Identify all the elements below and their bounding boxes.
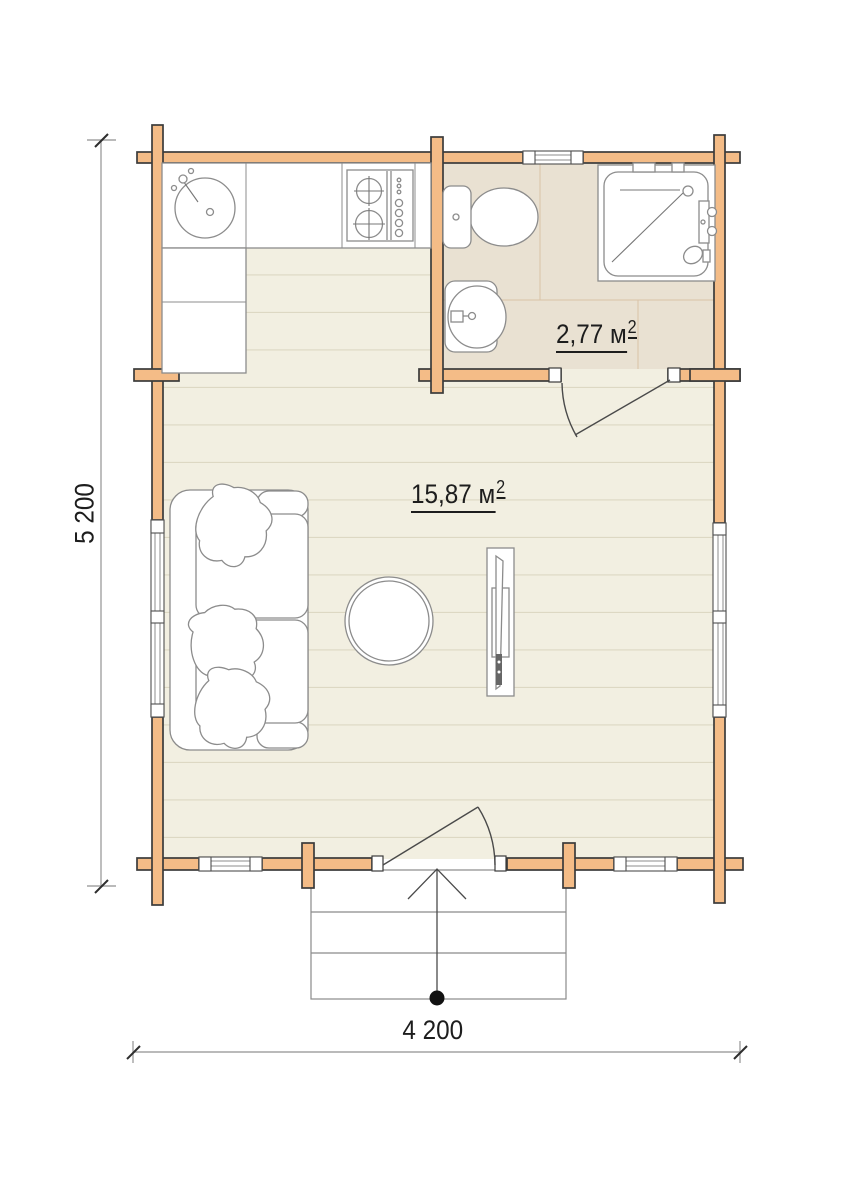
kitchen-partition-wall	[431, 137, 443, 393]
wall-cross-stub	[302, 843, 314, 888]
window-bottom-right	[614, 857, 677, 871]
sofa	[170, 476, 308, 756]
bottom-wall	[677, 858, 743, 870]
washbasin	[445, 281, 506, 352]
area-value: 15,87 м	[411, 479, 495, 513]
tv-mount	[496, 654, 502, 685]
area-value: 2,77 м	[556, 319, 627, 353]
sofa-armrest	[257, 722, 308, 748]
right-wall	[714, 717, 725, 903]
left-wall	[152, 717, 163, 905]
bottom-wall	[262, 858, 372, 870]
coffee-table	[345, 577, 433, 665]
toilet	[443, 186, 538, 248]
wall-cross-stub	[690, 369, 740, 381]
window-right	[713, 523, 726, 717]
bottom-wall	[137, 858, 199, 870]
width-dimension-label: 4 200	[402, 1015, 463, 1046]
right-wall	[714, 135, 725, 523]
bathroom-area-label: 2,77 м2	[556, 317, 637, 350]
entrance-steps	[311, 870, 566, 999]
tv-stand	[487, 548, 514, 696]
floor-plan: 15,87 м2 2,77 м2 4 200 5 200	[0, 0, 849, 1200]
area-superscript: 2	[628, 317, 637, 339]
window-top-bathroom	[523, 151, 583, 164]
height-dimension-label: 5 200	[69, 483, 100, 544]
window-bottom-left	[199, 857, 262, 871]
area-superscript: 2	[496, 477, 505, 499]
bottom-wall	[507, 858, 614, 870]
window-left	[151, 520, 164, 717]
stove	[347, 170, 413, 241]
start-point-dot	[430, 991, 445, 1006]
living-room-area-label: 15,87 м2	[411, 477, 505, 510]
top-wall	[137, 152, 523, 163]
shower-cabin	[598, 163, 717, 281]
wall-cross-stub	[563, 843, 575, 888]
